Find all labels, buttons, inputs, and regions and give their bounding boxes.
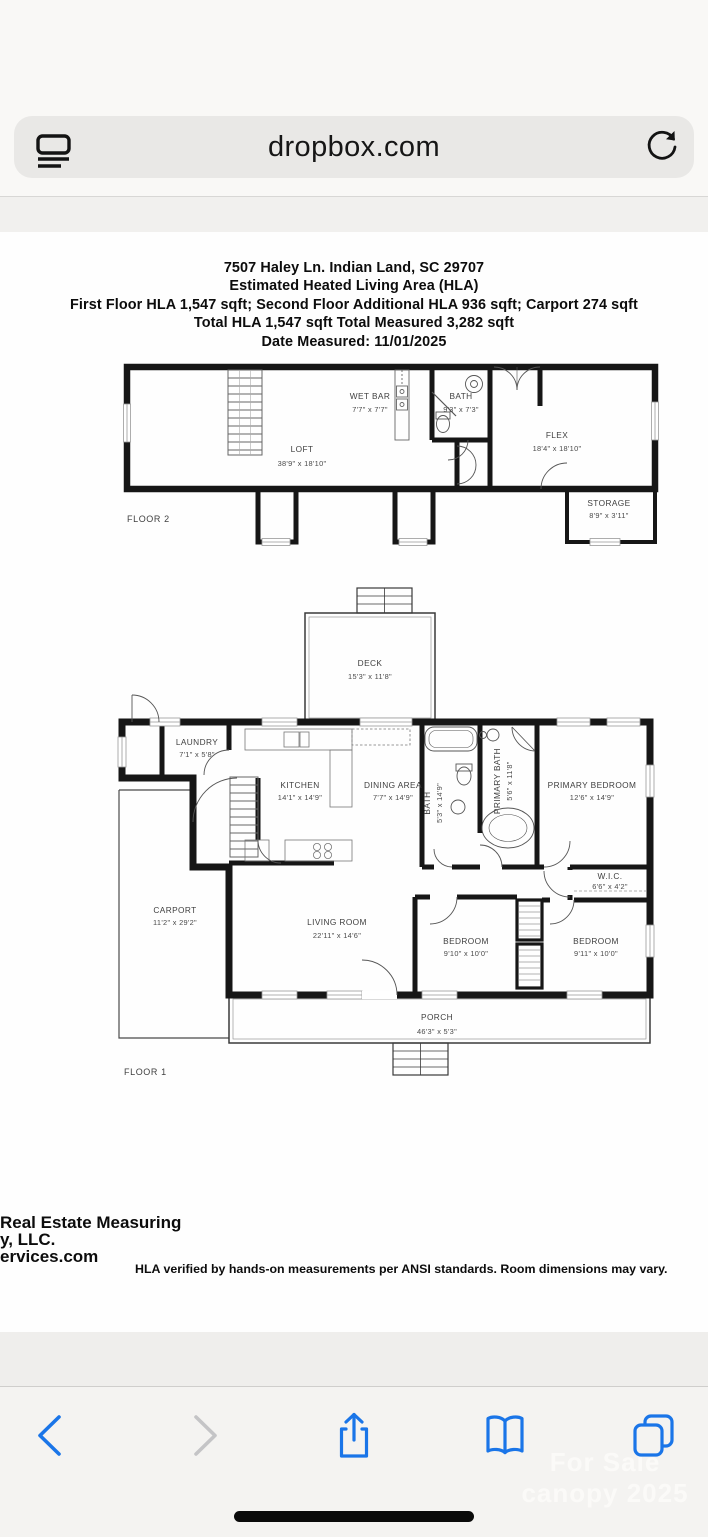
company-line: y, LLC.	[0, 1231, 181, 1248]
url-text[interactable]: dropbox.com	[0, 131, 708, 164]
document-header: 7507 Haley Ln. Indian Land, SC 29707 Est…	[0, 259, 708, 351]
room-label: PRIMARY BATH	[492, 748, 502, 814]
room-label: BEDROOM	[443, 936, 489, 946]
room-label: CARPORT	[153, 905, 196, 915]
floor2-label: FLOOR 2	[127, 514, 170, 524]
deck-outline	[305, 588, 435, 722]
room-dims: 7'7" x 14'9"	[373, 793, 413, 802]
refresh-icon[interactable]	[643, 128, 681, 166]
floor2-windows	[124, 402, 659, 546]
room-label: KITCHEN	[280, 780, 319, 790]
forward-button[interactable]	[178, 1411, 228, 1461]
company-line: Real Estate Measuring	[0, 1214, 181, 1231]
browser-chrome-top: dropbox.com	[0, 0, 708, 197]
room-dims: 12'6" x 14'9"	[570, 793, 615, 802]
room-dims: 6'6" x 4'2"	[592, 882, 628, 891]
bottom-divider-band	[0, 1332, 708, 1386]
address-line: 7507 Haley Ln. Indian Land, SC 29707	[0, 259, 708, 277]
room-dims: 5'3" x 14'9"	[435, 783, 444, 823]
room-dims: 7'1" x 5'8"	[179, 750, 215, 759]
room-label: DECK	[358, 658, 383, 668]
hla-total-line: Total HLA 1,547 sqft Total Measured 3,28…	[0, 314, 708, 332]
back-button[interactable]	[27, 1411, 77, 1461]
room-dims: 7'7" x 7'7"	[352, 405, 388, 414]
floorplan-document: 7507 Haley Ln. Indian Land, SC 29707 Est…	[0, 232, 708, 1332]
browser-toolbar: For Sale canopy 2025	[0, 1386, 708, 1537]
company-info: Real Estate Measuring y, LLC. ervices.co…	[0, 1214, 181, 1265]
room-dims: 46'3" x 5'3"	[417, 1027, 457, 1036]
floor2-bath-fixtures	[436, 376, 483, 433]
room-dims: 9'10" x 10'0"	[444, 949, 489, 958]
room-dims: 5'6" x 11'8"	[505, 761, 514, 801]
room-label: PORCH	[421, 1012, 453, 1022]
floor2-stairs	[228, 370, 262, 455]
floor1-stairs	[230, 777, 258, 857]
hla-detail-line: First Floor HLA 1,547 sqft; Second Floor…	[0, 296, 708, 314]
room-dims: 22'11" x 14'6"	[313, 931, 361, 940]
room-dims: 38'9" x 18'10"	[278, 459, 327, 468]
floor1-walls	[122, 722, 650, 995]
room-dims: 9'11" x 10'0"	[574, 949, 618, 958]
floor1-plan: DECK 15'3" x 11'8" LAUNDRY 7'1" x 5'8" K…	[112, 585, 664, 1085]
home-indicator[interactable]	[234, 1511, 474, 1522]
chrome-divider-band	[0, 197, 708, 232]
floor1-label: FLOOR 1	[124, 1067, 167, 1077]
room-dims: 9'3" x 7'3"	[443, 405, 479, 414]
date-line: Date Measured: 11/01/2025	[0, 333, 708, 351]
floor2-walls	[127, 367, 655, 542]
room-label: LIVING ROOM	[307, 917, 367, 927]
ansi-disclaimer: HLA verified by hands-on measurements pe…	[135, 1262, 667, 1276]
floor2-plan: LOFT 38'9" x 18'10" WET BAR 7'7" x 7'7" …	[112, 358, 664, 553]
room-dims: 8'9" x 3'11"	[589, 511, 629, 520]
room-label: LOFT	[291, 444, 314, 454]
share-button[interactable]	[329, 1411, 379, 1461]
room-label: DINING AREA	[364, 780, 422, 790]
room-label: W.I.C.	[598, 871, 623, 881]
room-dims: 15'3" x 11'8"	[348, 672, 392, 681]
room-label: WET BAR	[350, 391, 390, 401]
room-dims: 18'4" x 18'10"	[533, 444, 582, 453]
bookmarks-button[interactable]	[480, 1411, 530, 1461]
wet-bar-counter	[395, 370, 409, 440]
room-label: PRIMARY BEDROOM	[548, 780, 637, 790]
room-label: BATH	[422, 791, 432, 814]
tabs-button[interactable]	[628, 1411, 678, 1461]
room-label: BEDROOM	[573, 936, 619, 946]
room-label: LAUNDRY	[176, 737, 218, 747]
room-dims: 11'2" x 29'2"	[153, 918, 197, 927]
room-dims: 14'1" x 14'9"	[278, 793, 323, 802]
hla-title-line: Estimated Heated Living Area (HLA)	[0, 277, 708, 295]
room-label: FLEX	[546, 430, 568, 440]
room-label: BATH	[449, 391, 472, 401]
room-label: STORAGE	[587, 498, 630, 508]
